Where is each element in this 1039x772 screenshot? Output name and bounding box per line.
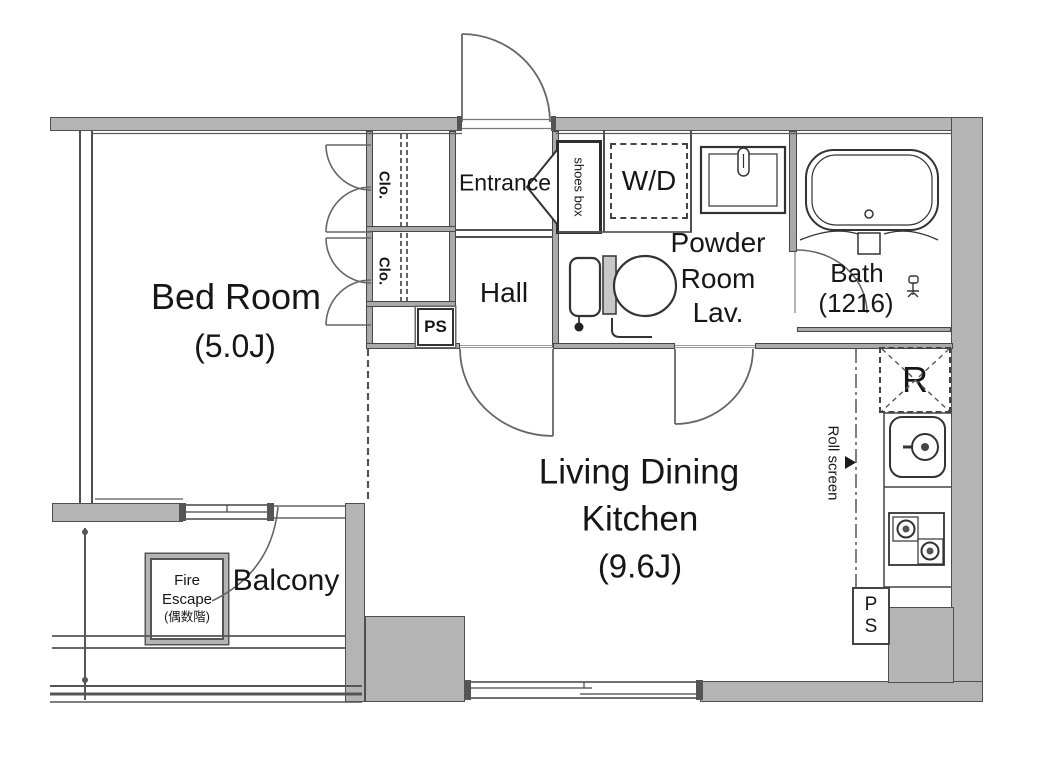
entrance-door <box>462 34 550 122</box>
fire-escape-line2: Escape <box>162 591 212 610</box>
pipe-space-kitchen-label: PS <box>864 594 879 638</box>
wall-closet-bottom <box>366 301 456 307</box>
bedroom-label: Bed Room <box>151 279 321 315</box>
fire-escape-hatch: Fire Escape (偶数階) <box>150 558 224 640</box>
bedroom-window <box>179 503 345 521</box>
bathtub <box>800 150 938 254</box>
entrance-threshold <box>457 116 556 131</box>
powder-room-line3: Lav. <box>693 299 744 327</box>
wall-powder-bath <box>789 131 797 252</box>
shoes-box-label: shoes box <box>573 157 586 216</box>
ldk-line1: Living Dining <box>539 455 739 490</box>
bath-label: Bath <box>830 260 884 286</box>
closet-pole-lines <box>401 134 407 301</box>
balcony-label: Balcony <box>233 566 340 596</box>
washbasin <box>701 147 785 213</box>
toilet <box>570 256 676 337</box>
refrigerator-space: R <box>879 347 951 413</box>
wall-right <box>951 117 983 702</box>
ldk-line2: Kitchen <box>582 502 699 537</box>
washer-dryer-label: W/D <box>622 165 676 197</box>
wall-corner-chunk <box>888 607 954 683</box>
powder-room-line1: Powder <box>671 229 766 257</box>
wall-bath-bottom <box>797 327 951 332</box>
wall-step-chunk <box>365 616 465 702</box>
floor-plan: W/D R PS PS Fire Escape (偶数階) <box>0 0 1039 772</box>
entrance-hall-divider-2 <box>456 236 553 238</box>
roll-screen-label: Roll screen <box>826 425 841 500</box>
entrance-hall-divider-1 <box>456 229 553 231</box>
shower-icon <box>907 276 919 297</box>
wall-closet-divider <box>366 226 456 232</box>
powder-room-line2: Room <box>681 265 756 293</box>
wall-wd-left <box>603 131 605 232</box>
refrigerator-label: R <box>902 359 928 401</box>
wall-bottom-right <box>700 681 983 702</box>
wall-top-left <box>50 117 462 131</box>
bath-size: (1216) <box>818 290 893 316</box>
ldk-window <box>464 680 703 700</box>
hall-door <box>460 349 553 436</box>
closet-doors <box>326 145 371 325</box>
wall-main-b <box>553 343 675 349</box>
pipe-space-kitchen: PS <box>852 587 890 645</box>
ldk-size: (9.6J) <box>598 550 682 583</box>
wall-closet-front <box>366 131 373 345</box>
hall-label: Hall <box>480 279 528 307</box>
fire-escape-line3: (偶数階) <box>164 610 210 626</box>
closet-top-label: Clo. <box>377 171 392 199</box>
wall-balcony-right <box>345 503 365 702</box>
wall-top-right <box>553 117 983 131</box>
wall-bedroom-left <box>79 131 93 503</box>
bedroom-size: (5.0J) <box>194 330 276 362</box>
closet-bottom-label: Clo. <box>377 257 392 285</box>
entrance-label: Entrance <box>459 172 551 195</box>
powder-room-door <box>675 349 753 424</box>
fire-escape-line1: Fire <box>174 572 200 591</box>
roll-screen-arrow <box>845 456 856 469</box>
pipe-space-hall: PS <box>417 308 454 346</box>
wall-wd-right <box>690 131 692 232</box>
kitchen-stove <box>889 513 944 565</box>
kitchen-sink <box>890 417 945 477</box>
washer-dryer-space: W/D <box>610 143 688 219</box>
pipe-space-hall-label: PS <box>424 317 447 337</box>
wall-bedroom-bottom <box>52 503 183 522</box>
kitchen-counter <box>884 413 951 587</box>
